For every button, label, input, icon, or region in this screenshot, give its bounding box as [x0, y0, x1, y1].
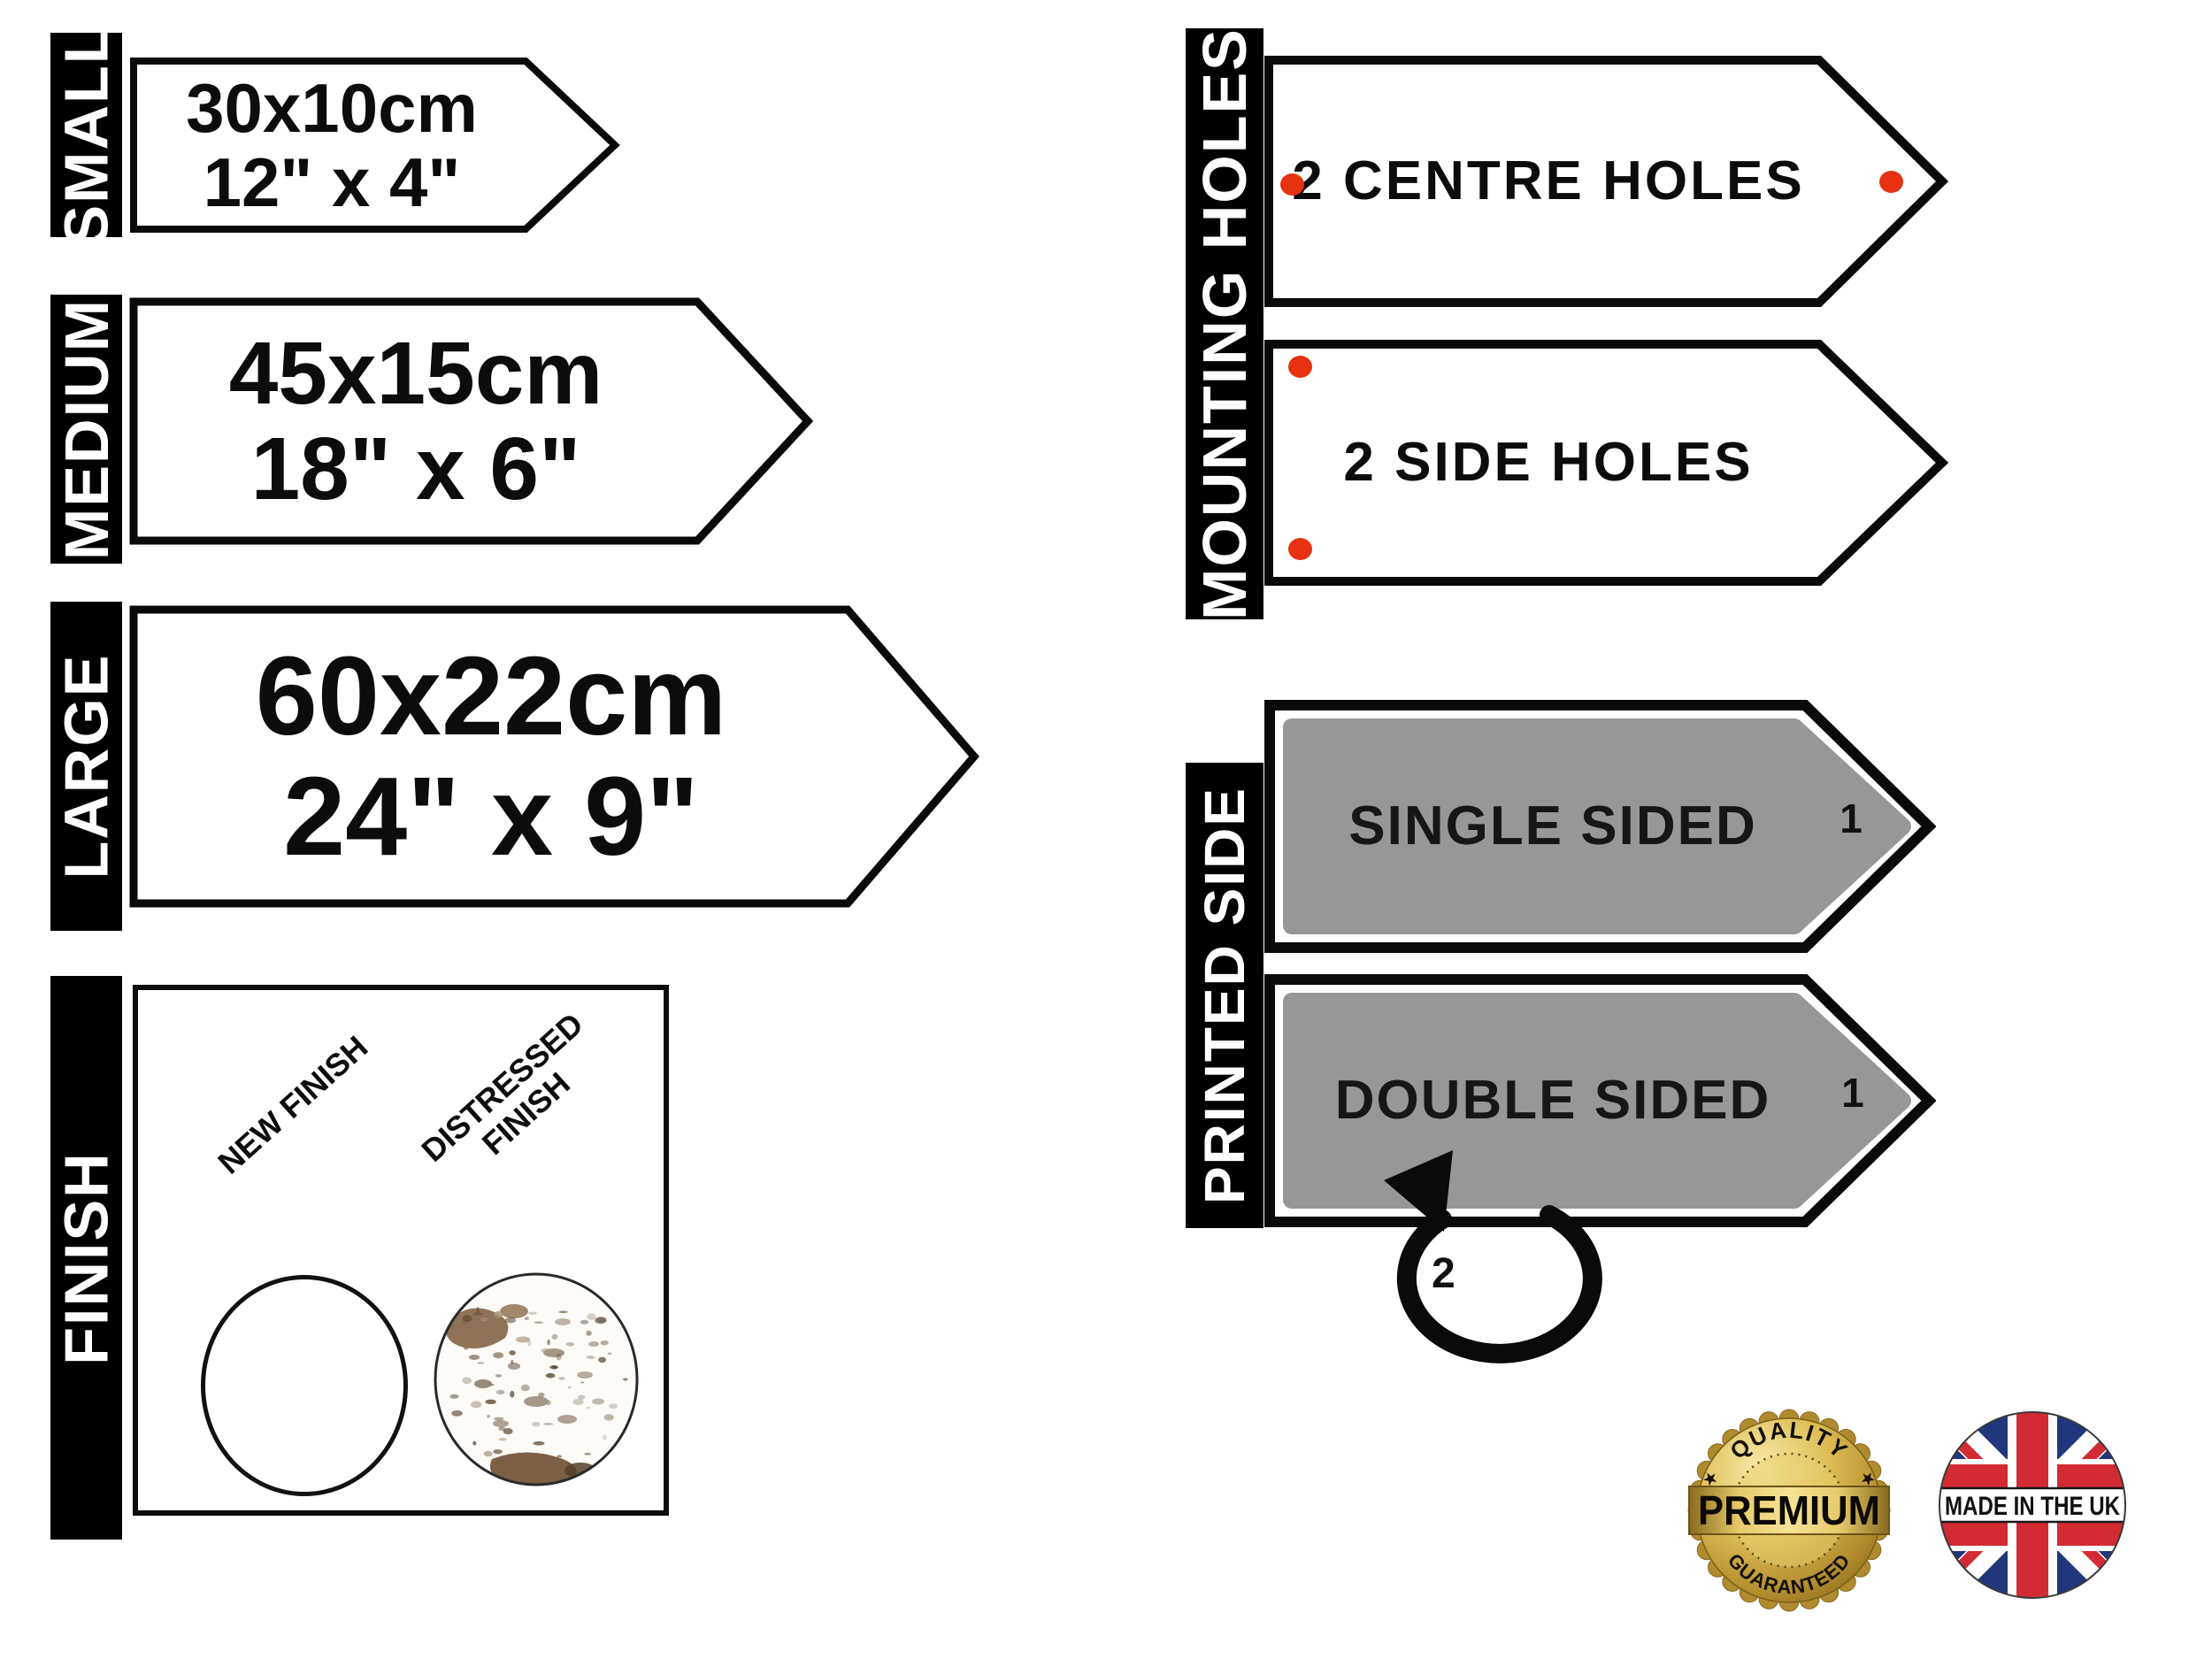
- mounting-hole-dot: [1280, 173, 1304, 196]
- small-dimension-inches: 12" x 4": [204, 145, 461, 219]
- premium-center-text: PREMIUM: [1698, 1487, 1880, 1533]
- centre-holes-sign-text: 2 CENTRE HOLES: [1274, 58, 1823, 304]
- made-in-uk-badge: MADE IN THE UK: [1938, 1410, 2127, 1600]
- finish-options-box: NEW FINISH DISTRESSED FINISH: [133, 985, 669, 1516]
- mounting-hole-dot: [1288, 356, 1312, 378]
- mounting-hole-dot: [1879, 171, 1903, 193]
- centre-holes-text: 2 CENTRE HOLES: [1292, 152, 1804, 211]
- mounting-hole-dot: [1288, 538, 1312, 560]
- side-1-number: 1: [1833, 1072, 1872, 1113]
- medium-dimension-inches: 18" x 6": [251, 421, 581, 517]
- single-sided-text: SINGLE SIDED: [1348, 797, 1757, 856]
- medium-size-sign-text: 45x15cm 18" x 6": [142, 304, 690, 538]
- printed-side-label: PRINTED SIDE: [1192, 787, 1257, 1204]
- single-sided-sign-text: SINGLE SIDED: [1292, 703, 1814, 950]
- small-size-sign-text: 30x10cm 12" x 4": [142, 64, 522, 227]
- small-size-label: SMALL: [51, 24, 122, 246]
- new-finish-label: NEW FINISH: [203, 1021, 384, 1189]
- side-holes-sign-text: 2 SIDE HOLES: [1274, 342, 1823, 583]
- large-size-label: LARGE: [51, 654, 122, 879]
- small-size-label-bar: SMALL: [50, 33, 122, 237]
- medium-size-label-bar: MEDIUM: [50, 295, 122, 564]
- distressed-finish-swatch: [430, 1269, 642, 1490]
- large-dimension-cm: 60x22cm: [256, 636, 727, 757]
- side-1-number: 1: [1832, 798, 1870, 839]
- finish-label-bar: FINISH: [50, 976, 122, 1540]
- side-holes-text: 2 SIDE HOLES: [1343, 434, 1753, 493]
- distressed-finish-label: DISTRESSED FINISH: [405, 997, 623, 1203]
- made-in-uk-text: MADE IN THE UK: [1945, 1492, 2120, 1521]
- flip-arrow-icon: 2: [1363, 1124, 1681, 1429]
- medium-dimension-cm: 45x15cm: [229, 326, 603, 421]
- double-sided-text: DOUBLE SIDED: [1335, 1071, 1770, 1131]
- small-dimension-cm: 30x10cm: [186, 71, 478, 145]
- finish-label: FINISH: [51, 1151, 122, 1364]
- large-dimension-inches: 24" x 9": [283, 757, 699, 877]
- product-options-sheet: SMALL 30x10cm 12" x 4" MEDIUM 45x15cm 18…: [0, 0, 2212, 1659]
- flip-2-number: 2: [1432, 1250, 1455, 1297]
- printed-side-label-bar: PRINTED SIDE: [1186, 763, 1263, 1228]
- premium-quality-badge: QUALITY ★ ★ PREMIUM GUARANTEED: [1687, 1409, 1891, 1612]
- medium-size-label: MEDIUM: [51, 298, 122, 560]
- new-finish-swatch: [201, 1275, 408, 1496]
- large-size-sign-text: 60x22cm 24" x 9": [142, 614, 841, 899]
- large-size-label-bar: LARGE: [50, 602, 122, 931]
- mounting-holes-label: MOUNTING HOLES: [1189, 27, 1260, 620]
- mounting-holes-label-bar: MOUNTING HOLES: [1186, 28, 1263, 619]
